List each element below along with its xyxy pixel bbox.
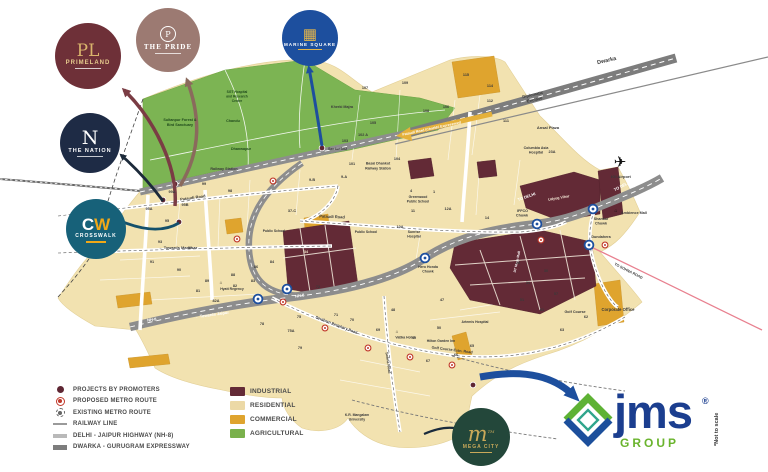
map-label: Railway Station bbox=[365, 167, 391, 171]
hwy-icon bbox=[52, 434, 68, 438]
metro-existing-icon bbox=[52, 408, 68, 417]
proposed-metro-station-dot bbox=[540, 239, 542, 241]
sector-label: 112 bbox=[487, 99, 493, 103]
sector-label: 51 bbox=[520, 298, 524, 302]
sector-label: 104 bbox=[394, 157, 401, 161]
map-label: Ambience Mall bbox=[621, 211, 647, 215]
sector-label: 79 bbox=[298, 346, 302, 350]
sector-label: 83 bbox=[251, 279, 255, 283]
legend-zone-list: INDUSTRIALRESIDENTIALCOMMERCIALAGRICULTU… bbox=[230, 384, 360, 440]
marine-square-bar bbox=[298, 49, 322, 50]
sector-label: 11 bbox=[411, 209, 415, 213]
sector-label: 91 bbox=[150, 260, 154, 264]
proposed-metro-station-dot bbox=[451, 364, 453, 366]
sector-label: 23A bbox=[549, 150, 556, 154]
proposed-metro-station-dot bbox=[367, 347, 369, 349]
sector-label: 82 bbox=[233, 284, 237, 288]
logo-crosswalk: CW CROSSWALK bbox=[66, 199, 126, 259]
nation-monogram: N bbox=[82, 129, 99, 148]
zone-swatch-icon bbox=[230, 429, 245, 438]
jms-diamond-icon bbox=[560, 392, 616, 448]
map-label: Chowk bbox=[595, 222, 608, 226]
jms-registered-mark: ® bbox=[702, 396, 709, 406]
map-label: Corporate Office bbox=[601, 307, 635, 312]
sector-label: 108 bbox=[423, 109, 429, 113]
existing-metro-station-dot bbox=[424, 257, 427, 260]
sector-label: 57 bbox=[554, 292, 558, 296]
sector-label: 29 bbox=[516, 261, 520, 265]
map-label: Kherki Majra bbox=[331, 105, 354, 109]
sector-label: 95 bbox=[165, 219, 169, 223]
sector-label: 69 bbox=[376, 328, 380, 332]
map-label: Chowk bbox=[516, 214, 529, 218]
sector-label: 49 bbox=[412, 336, 416, 340]
sector-label: 12A bbox=[445, 207, 452, 211]
sector-label: 95B bbox=[182, 203, 189, 207]
sector-label: 114 bbox=[487, 84, 494, 88]
zone-swatch-icon bbox=[230, 387, 245, 396]
map-label: Dhanwapur bbox=[231, 147, 252, 151]
map-label: Dundahera bbox=[591, 235, 611, 239]
map-label: IFFCO bbox=[517, 209, 528, 213]
sector-label: 102 A bbox=[358, 133, 368, 137]
sector-label: 50 bbox=[437, 326, 441, 330]
legend-zone: AGRICULTURAL bbox=[230, 426, 360, 440]
legend-zone-label: AGRICULTURAL bbox=[250, 430, 304, 437]
map-label: Shankar bbox=[594, 217, 609, 221]
sector-label: 99 bbox=[202, 182, 206, 186]
map-label: Sunrise bbox=[408, 230, 421, 234]
map-label: Public School bbox=[263, 229, 285, 233]
map-label: Greenwood bbox=[409, 195, 428, 199]
map-label: Hospital bbox=[407, 235, 420, 239]
map-label: and Research bbox=[226, 95, 248, 99]
sector-label: 62 bbox=[584, 315, 588, 319]
sector-label: 66 bbox=[454, 353, 458, 357]
map-label: Hospital bbox=[529, 151, 543, 155]
map-label: Railway Station bbox=[210, 167, 238, 171]
legend-symbol-list: PROJECTS BY PROMOTERSPROPOSED METRO ROUT… bbox=[52, 384, 202, 453]
legend-item: DWARKA - GURUGRAM EXPRESSWAY bbox=[52, 442, 202, 454]
existing-metro-station-dot bbox=[536, 223, 539, 226]
sector-label: 82A bbox=[213, 299, 220, 303]
map-label: Dwarka bbox=[597, 56, 618, 66]
logo-the-nation: N THE NATION bbox=[60, 113, 120, 173]
sector-label: 65 bbox=[470, 344, 474, 348]
metro-proposed-icon bbox=[52, 397, 68, 406]
map-label: Pataudi Road bbox=[319, 214, 345, 220]
map-label: Public School bbox=[355, 230, 377, 234]
mega-city-monogram: mTM bbox=[468, 422, 495, 444]
sector-label: 71 bbox=[334, 313, 338, 317]
sector-label: 63 bbox=[560, 328, 564, 332]
logo-mega-city: mTM MEGA CITY bbox=[452, 408, 510, 466]
nation-title: THE NATION bbox=[68, 148, 111, 154]
legend-zone: COMMERCIAL bbox=[230, 412, 360, 426]
primeland-rule bbox=[75, 68, 101, 69]
legend-item-label: PROPOSED METRO ROUTE bbox=[73, 398, 157, 404]
map-label: Bird Sanctuary bbox=[167, 123, 194, 127]
project-dot bbox=[319, 145, 325, 151]
sector-label: 78 bbox=[260, 322, 264, 326]
legend-zone-label: RESIDENTIAL bbox=[250, 402, 296, 409]
legend-zone: RESIDENTIAL bbox=[230, 398, 360, 412]
map-label: Artemis Hospital bbox=[462, 320, 489, 324]
sector-label: 90 bbox=[177, 268, 181, 272]
jms-group-logo: jms ® GROUP bbox=[560, 392, 740, 462]
sector-label: 67 bbox=[426, 359, 430, 363]
proposed-metro-station-dot bbox=[272, 180, 274, 182]
sector-label: 107 bbox=[362, 86, 368, 90]
legend-item: PROPOSED METRO ROUTE bbox=[52, 396, 202, 408]
crosswalk-monogram: CW bbox=[82, 216, 110, 233]
existing-metro-station-dot bbox=[286, 288, 289, 291]
existing-metro-station-dot bbox=[257, 298, 260, 301]
existing-metro-station-dot bbox=[592, 208, 595, 211]
map-label: Chowk bbox=[422, 270, 434, 274]
proposed-metro-station-dot bbox=[282, 301, 284, 303]
map-label: IGI Airport bbox=[611, 174, 631, 179]
sector-label: 105 bbox=[370, 121, 376, 125]
primeland-monogram: PL bbox=[77, 43, 100, 60]
sector-label: 99A bbox=[169, 190, 176, 194]
sector-label: 9-A bbox=[341, 175, 347, 179]
map-label: ✈ bbox=[614, 154, 627, 171]
map-label: Hilton Garden Inn bbox=[427, 339, 455, 343]
sector-label: 70 bbox=[350, 318, 354, 322]
map-label: Golf Course bbox=[564, 310, 585, 314]
sector-label: 72 bbox=[316, 285, 320, 289]
jms-wordmark: jms bbox=[614, 384, 692, 439]
legend-item-label: DWARKA - GURUGRAM EXPRESSWAY bbox=[73, 444, 190, 450]
legend-item: PROJECTS BY PROMOTERS bbox=[52, 384, 202, 396]
sector-label: 106 bbox=[443, 105, 449, 109]
sector-label: 81 bbox=[196, 289, 200, 293]
sector-label: 98 bbox=[228, 189, 232, 193]
proposed-metro-station-dot bbox=[409, 356, 411, 358]
legend-item: EXISTING METRO ROUTE bbox=[52, 407, 202, 419]
sector-label: 1 bbox=[433, 190, 435, 194]
sector-label: 30 bbox=[544, 269, 548, 273]
dot-icon bbox=[52, 386, 68, 393]
logo-primeland: PL PRIMELAND bbox=[55, 23, 121, 89]
legend-item: RAILWAY LINE bbox=[52, 419, 202, 431]
proposed-metro-station-dot bbox=[324, 327, 326, 329]
mega-city-title: MEGA CITY bbox=[463, 444, 500, 450]
proposed-metro-station-dot bbox=[236, 238, 238, 240]
map-label: Chandu bbox=[226, 119, 240, 123]
sector-label: 88 bbox=[231, 273, 235, 277]
map-label: Hero Honda bbox=[418, 265, 438, 269]
pride-title: THE PRIDE bbox=[144, 44, 192, 51]
map-label: Public School bbox=[407, 200, 429, 204]
legend-zone-label: COMMERCIAL bbox=[250, 416, 297, 423]
sector-label: 86 bbox=[254, 265, 258, 269]
location-map-poster: DwarkaDiplomaticEnclaveAnsal PlazaColumb… bbox=[0, 0, 768, 472]
sector-label: 115 bbox=[463, 73, 469, 77]
zone-swatch-icon bbox=[230, 401, 245, 410]
sector-label: 75 bbox=[297, 315, 301, 319]
sector-label: 92 bbox=[188, 246, 192, 250]
sector-label: 75A bbox=[288, 329, 295, 333]
legend-zone: INDUSTRIAL bbox=[230, 384, 360, 398]
expwy-icon bbox=[52, 445, 68, 451]
legend-item: DELHI - JAIPUR HIGHWAY (NH-8) bbox=[52, 430, 202, 442]
sector-label: 101 bbox=[349, 162, 355, 166]
legend-item-label: RAILWAY LINE bbox=[73, 421, 117, 427]
pride-rule bbox=[155, 53, 181, 54]
map-label: Centre bbox=[232, 99, 243, 103]
rail-icon bbox=[52, 423, 68, 425]
crosswalk-bar bbox=[86, 241, 106, 243]
map-label: ⌂ bbox=[614, 208, 617, 214]
crosswalk-title: CROSSWALK bbox=[75, 233, 117, 239]
sector-label: 10A bbox=[397, 225, 404, 229]
legend-item-label: EXISTING METRO ROUTE bbox=[73, 410, 151, 416]
marine-square-icon: ▦ bbox=[303, 27, 317, 42]
map-label: Basai Dhankot bbox=[366, 162, 391, 166]
proposed-metro-station-dot bbox=[604, 244, 606, 246]
map-label: ⌂ bbox=[396, 329, 399, 334]
sector-label: 111 bbox=[503, 119, 509, 123]
legend-zone-label: INDUSTRIAL bbox=[250, 388, 291, 395]
marine-square-title: MARINE SQUARE bbox=[284, 42, 336, 47]
mega-city-bar bbox=[470, 452, 492, 453]
map-label: Columbia Asia bbox=[524, 146, 550, 150]
sector-label: 103 bbox=[342, 139, 348, 143]
pride-circled-p-icon: P bbox=[160, 26, 176, 42]
jms-group-text: GROUP bbox=[620, 436, 679, 450]
legend-item-label: PROJECTS BY PROMOTERS bbox=[73, 387, 160, 393]
logo-the-pride: P THE PRIDE bbox=[136, 8, 200, 72]
map-label: Sultanpur Forest & bbox=[163, 118, 197, 122]
sector-label: 109 bbox=[402, 81, 408, 85]
logo-marine-square: ▦ MARINE SQUARE bbox=[282, 10, 338, 66]
map-label: Ansal Plaza bbox=[537, 125, 560, 130]
primeland-title: PRIMELAND bbox=[66, 60, 111, 66]
nation-rule bbox=[77, 156, 103, 157]
sector-label: 9-B bbox=[309, 178, 315, 182]
sector-label: 95A bbox=[146, 207, 153, 211]
sector-label: 48 bbox=[391, 308, 395, 312]
zone-swatch-icon bbox=[230, 415, 245, 424]
map-label: Sector 102 bbox=[328, 147, 347, 151]
sector-label: 93 bbox=[158, 240, 162, 244]
map-label: SGT Hospital bbox=[227, 90, 248, 94]
sector-label: 31 bbox=[526, 281, 530, 285]
sector-label: 47 bbox=[440, 298, 444, 302]
existing-metro-station-dot bbox=[588, 244, 591, 247]
sector-label: 37-C bbox=[288, 209, 296, 213]
project-dot bbox=[470, 382, 476, 388]
sector-label: 89 bbox=[205, 279, 209, 283]
sector-label: 61 bbox=[540, 308, 544, 312]
map-label: ⌂ bbox=[220, 280, 223, 285]
legend-item-label: DELHI - JAIPUR HIGHWAY (NH-8) bbox=[73, 433, 173, 439]
